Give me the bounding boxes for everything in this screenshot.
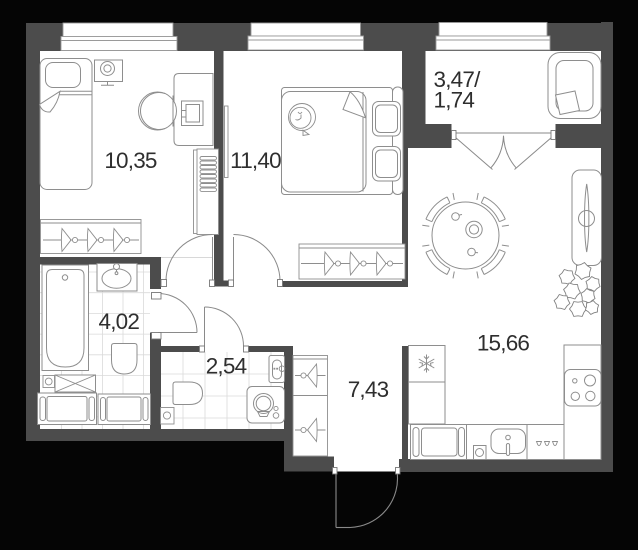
svg-text:7,43: 7,43 xyxy=(348,377,389,402)
svg-text:1,74: 1,74 xyxy=(434,88,475,113)
svg-text:15,66: 15,66 xyxy=(477,331,530,356)
svg-text:11,40: 11,40 xyxy=(230,148,281,173)
svg-text:4,02: 4,02 xyxy=(99,309,140,334)
svg-text:2,54: 2,54 xyxy=(206,354,247,379)
svg-text:10,35: 10,35 xyxy=(104,148,157,173)
